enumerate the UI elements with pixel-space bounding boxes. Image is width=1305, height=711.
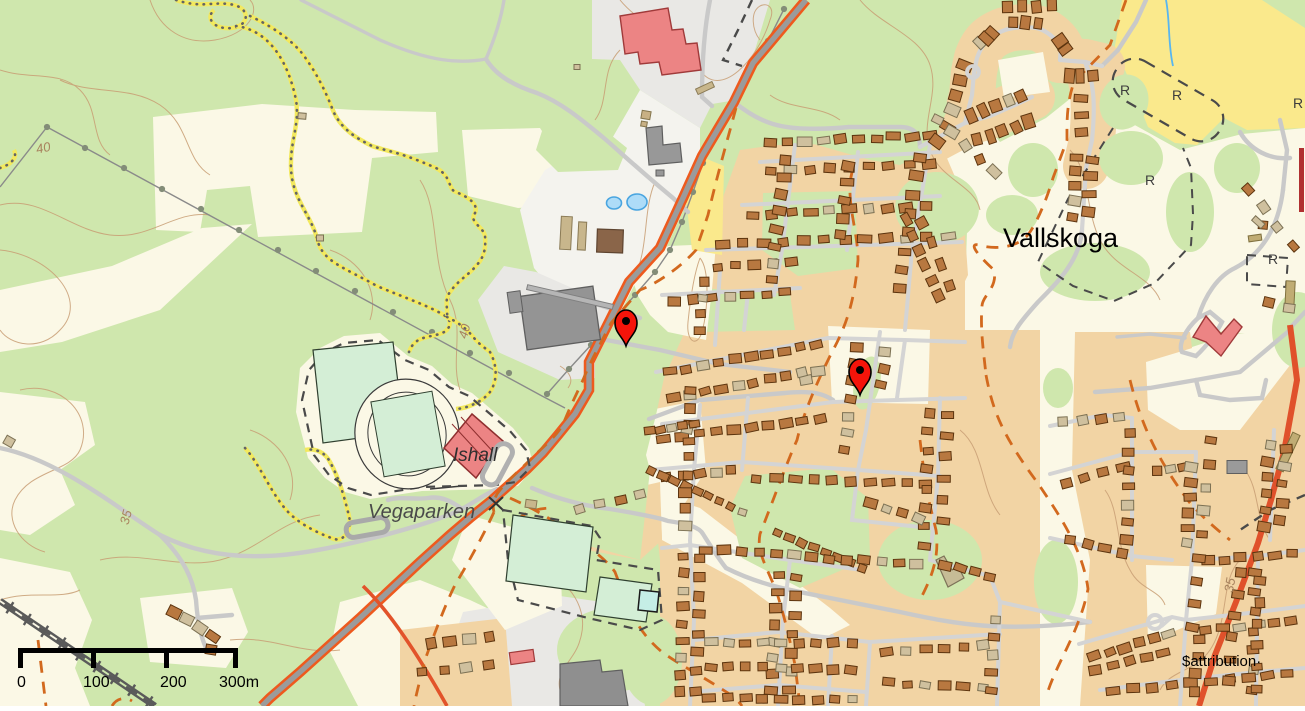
svg-text:100: 100 <box>83 674 110 691</box>
svg-text:0: 0 <box>17 674 26 691</box>
svg-text:Vegaparken: Vegaparken <box>368 501 475 523</box>
svg-text:R: R <box>1268 251 1278 267</box>
svg-text:R: R <box>1172 87 1182 103</box>
svg-text:$attribution·: $attribution· <box>1182 653 1261 670</box>
svg-text:R: R <box>1120 82 1130 98</box>
svg-text:R: R <box>1145 172 1155 188</box>
svg-text:R: R <box>1293 95 1303 111</box>
svg-text:Vallskoga: Vallskoga <box>1003 223 1119 253</box>
svg-text:300m: 300m <box>219 674 259 691</box>
svg-text:200: 200 <box>160 674 187 691</box>
svg-text:Ishall: Ishall <box>453 445 498 466</box>
